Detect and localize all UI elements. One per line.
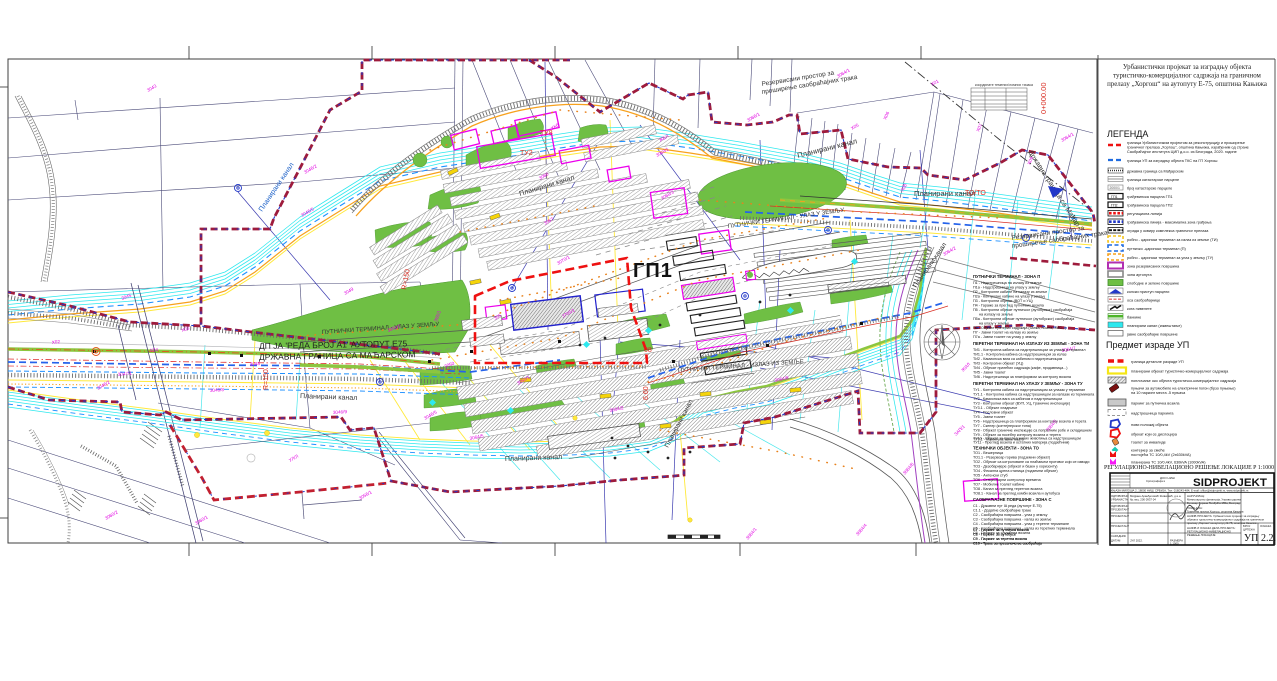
svg-text:број катастарске парцеле: број катастарске парцеле — [1127, 187, 1172, 191]
svg-text:ограда у оквиру комплекса гран: ограда у оквиру комплекса граничног прел… — [1127, 229, 1209, 233]
svg-text:Булевар Зорана Ђинђића 155а, Б: Булевар Зорана Ђинђића 155а, Београд — [1187, 501, 1240, 505]
svg-text:ТУ11 - Преглед возила и остатн: ТУ11 - Преглед возила и остатних материј… — [973, 441, 1069, 445]
svg-text:ТО3 - Дезобаријере (објекат и: ТО3 - Дезобаријере (објекат и базен у хо… — [973, 465, 1058, 469]
svg-text:С8 - Паркинг за аутобусе: С8 - Паркинг за аутобусе — [973, 533, 1016, 537]
svg-text:ТО1.1 - Резервоар горива (подз: ТО1.1 - Резервоар горива (подземни објек… — [973, 456, 1050, 460]
svg-text:ПЕРЕТНИ ТЕРМИНАЛ НА ИЗЛАЗУ ИЗ: ПЕРЕТНИ ТЕРМИНАЛ НА ИЗЛАЗУ ИЗ ЗЕМЉЕ - ЗО… — [973, 341, 1089, 346]
svg-text:грађевинска парцела ГП1: грађевинска парцела ГП1 — [1127, 195, 1173, 199]
svg-text:ТО8 - Канал за преглед теретни: ТО8 - Канал за преглед теретних возила — [973, 487, 1043, 491]
svg-text:П2 - Контролне кабине на излаз: П2 - Контролне кабине на излазу из земље — [973, 290, 1047, 294]
svg-text:граница катастарске парцеле: граница катастарске парцеле — [1127, 178, 1179, 182]
svg-text:РЕГУЛАЦИОНО-НИВЕЛАЦИОНО РЕШЕЊЕ: РЕГУЛАЦИОНО-НИВЕЛАЦИОНО РЕШЕЊЕ ЛОКАЦИЈЕ … — [1104, 464, 1275, 471]
svg-text:САОБРАЋАЈНЕ ПОВРШИНЕ - ЗОНА С: САОБРАЋАЈНЕ ПОВРШИНЕ - ЗОНА С — [973, 497, 1052, 502]
svg-text:нови положај објекта: нови положај објекта — [1131, 423, 1169, 427]
svg-text:С7 - Паркинг за путничка возил: С7 - Паркинг за путничка возила — [973, 528, 1030, 532]
svg-text:планирани канал (измештање): планирани канал (измештање) — [1127, 324, 1182, 328]
svg-text:Саобраћајног института ЦИП д.о: Саобраћајног института ЦИП д.о.о. из Бео… — [1127, 150, 1237, 154]
svg-text:Предмет израде УП: Предмет израде УП — [1106, 340, 1189, 350]
svg-text:ТО4 - Фекална црпна станица (п: ТО4 - Фекална црпна станица (подземни об… — [973, 469, 1058, 473]
svg-text:планирани објекат туристичко-к: планирани објекат туристичко-комерцијалн… — [1131, 370, 1229, 374]
svg-text:УРБАНИСТА: УРБАНИСТА — [1111, 498, 1128, 502]
svg-text:зона аутопута: зона аутопута — [1127, 273, 1152, 277]
svg-text:ОЗНАКА: ОЗНАКА — [1260, 524, 1271, 528]
svg-text:граница УП за изградњу објекта: граница УП за изградњу објекта ТКС на ГП… — [1127, 159, 1217, 163]
svg-text:зона резервисаних површина: зона резервисаних површина — [1127, 265, 1180, 269]
svg-text:ТУ2 - Камионска вага са кабино: ТУ2 - Камионска вага са кабином и надстр… — [973, 397, 1062, 401]
svg-text:слободне и зелене површине: слободне и зелене површине — [1127, 282, 1179, 286]
svg-text:колски приступ парцели: колски приступ парцели — [1127, 290, 1169, 294]
svg-text:С2 - Саобраћајна површина - ул: С2 - Саобраћајна површина - улаз у земљу — [973, 513, 1048, 517]
svg-text:ТО7 - Мобилне тоалет кабине: ТО7 - Мобилне тоалет кабине — [973, 483, 1024, 487]
svg-text:регулациона линија: регулациона линија — [1127, 212, 1163, 216]
svg-text:контејнер за смеће: контејнер за смеће — [1131, 449, 1165, 453]
svg-text:ПУТНИЧКИ ТЕРМИНАЛ - ЗОНА П: ПУТНИЧКИ ТЕРМИНАЛ - ЗОНА П — [973, 274, 1040, 279]
svg-text:ТУ7 - Скенер (контејнерског ти: ТУ7 - Скенер (контејнерског типа) — [973, 424, 1031, 428]
svg-text:ГП2: ГП2 — [1111, 204, 1118, 208]
svg-text:банкине: банкине — [1127, 316, 1141, 320]
svg-text:граница Урбанистичким пројекто: граница Урбанистичким пројектом за рекон… — [1127, 141, 1245, 145]
svg-text:на излазу из земље: на излазу из земље — [979, 313, 1013, 317]
svg-text:УП: УП — [1244, 533, 1258, 544]
svg-text:надстрешница паркинга: надстрешница паркинга — [1131, 412, 1174, 416]
svg-text:П5а - Контролни објекат путнич: П5а - Контролни објекат путничког (аутоб… — [973, 317, 1075, 321]
svg-text:ТУ1.1 - Контролна кабина са на: ТУ1.1 - Контролна кабина са надстрешницо… — [973, 393, 1095, 397]
svg-text:пуњачи за аутомобиле на електр: пуњачи за аутомобиле на електрични погон… — [1131, 387, 1236, 391]
svg-text:постојећа ТС 10/0,4kV (2x630kV: постојећа ТС 10/0,4kV (2x630kVA) — [1131, 453, 1192, 457]
svg-text:ЦРТЕЖА: ЦРТЕЖА — [1243, 528, 1255, 532]
svg-text:ТУ3.1 - Објекат хладњаче: ТУ3.1 - Објекат хладњаче — [973, 406, 1017, 410]
svg-text:ТИ1.1 - Контролна кабина са на: ТИ1.1 - Контролна кабина са надстрешницо… — [973, 353, 1067, 357]
svg-text:РЕШЕЊЕ ЛОКАЦИЈЕ: РЕШЕЊЕ ЛОКАЦИЈЕ — [1187, 533, 1216, 537]
svg-text:граница детаљне разраде УП: граница детаљне разраде УП — [1131, 360, 1184, 364]
svg-text:Урбанистички пројекат за изгра: Урбанистички пројекат за изградњу објект… — [1123, 64, 1251, 71]
svg-text:јавне саобраћајне површине: јавне саобраћајне површине — [1126, 333, 1178, 337]
svg-text:Гранични прелаз Хоргош, општин: Гранични прелаз Хоргош, општина Кањижа — [1187, 510, 1244, 514]
svg-text:поплочање око објекта туристич: поплочање око објекта туристичко-комерци… — [1131, 379, 1237, 383]
svg-text:3046/8: 3046/8 — [210, 387, 225, 393]
svg-text:ТО8.1 - Канал за преглед комби: ТО8.1 - Канал за преглед комби возила и … — [973, 492, 1061, 496]
svg-text:ТУ1 - Контролна кабина са надс: ТУ1 - Контролна кабина са надстрешницом … — [973, 388, 1085, 392]
svg-text:ТЕХНИЧКИ ОБЈЕКТИ - ЗОНА ТО: ТЕХНИЧКИ ОБЈЕКТИ - ЗОНА ТО — [973, 446, 1040, 451]
svg-text:П2а - Контролне кабине на улаз: П2а - Контролне кабине на улазу у земљу — [973, 295, 1045, 299]
svg-text:П1а - Надстрешница на улазу у: П1а - Надстрешница на улазу у земљу — [973, 286, 1040, 290]
svg-text:ДОО НИШ: ДОО НИШ — [1160, 476, 1175, 480]
svg-text:ТИ5 - Јавни тоалет: ТИ5 - Јавни тоалет — [973, 371, 1006, 375]
svg-text:R=150: R=150 — [263, 369, 270, 390]
svg-text:С4 - Саобраћајна површина - ул: С4 - Саобраћајна површина - улаз у терет… — [973, 522, 1069, 526]
svg-text:3046/9: 3046/9 — [333, 409, 348, 415]
svg-text:ТИ1 - Контролна кабина са надс: ТИ1 - Контролна кабина са надстрешницом … — [973, 348, 1086, 352]
svg-text:робно - царински терминал за у: робно - царински терминал за улаз у земљ… — [1127, 256, 1214, 260]
svg-text:2.2.: 2.2. — [1261, 533, 1276, 544]
svg-text:САРАДНИК: САРАДНИК — [1111, 534, 1126, 538]
svg-text:ПРОЈЕКТАНТ: ПРОЈЕКТАНТ — [1111, 514, 1129, 518]
svg-text:П7 - Јавни тоалет на излазу из: П7 - Јавни тоалет на излазу из земље — [973, 331, 1038, 335]
svg-text:кота нивелете: кота нивелете — [1127, 307, 1152, 311]
svg-text:2000/1: 2000/1 — [1110, 186, 1120, 190]
svg-text:С10 - Траке за пресвлачење сао: С10 - Траке за пресвлачење саобраћаја — [973, 542, 1043, 546]
svg-text:граничног прелаза „Хоргош“, оп: граничног прелаза „Хоргош“, општина Кањи… — [1127, 146, 1249, 150]
svg-text:Х04: Х04 — [150, 347, 159, 353]
svg-text:6.60: 6.60 — [643, 386, 650, 400]
svg-text:П4 - Гараже за преглед путничк: П4 - Гараже за преглед путничких возила — [973, 304, 1045, 308]
svg-text:КЊАЗА МИЛОША 2, 18000 НИШ, СРБ: КЊАЗА МИЛОША 2, 18000 НИШ, СРБИЈА, Тел: … — [1111, 489, 1249, 493]
svg-text:ТО2 - Објекат са котроловане с: ТО2 - Објекат са котроловане са плаћањем… — [973, 460, 1089, 464]
svg-text:ПРОЈЕКТАНТ: ПРОЈЕКТАНТ — [1111, 508, 1129, 512]
svg-text:државна граница са Мађарском: државна граница са Мађарском — [1127, 170, 1184, 174]
svg-text:ГП1: ГП1 — [633, 260, 673, 282]
svg-text:објекат који се дислоцира: објекат који се дислоцира — [1131, 433, 1178, 437]
svg-text:ТИ3 - Контролни објекат (УЦ): ТИ3 - Контролни објекат (УЦ) — [973, 362, 1023, 366]
svg-text:ГП1: ГП1 — [1111, 195, 1118, 199]
svg-text:на 10 паркинг места -5 пуњача: на 10 паркинг места -5 пуњача — [1131, 391, 1186, 395]
svg-text:координате темених/ломних тача: координате темених/ломних тачака — [975, 83, 1033, 87]
svg-text:робно - царински терминал за и: робно - царински терминал за излаз из зе… — [1127, 238, 1219, 242]
svg-text:08: 08 — [644, 347, 652, 354]
svg-text:П7а - Јавни тоалет на улазу у: П7а - Јавни тоалет на улазу у земљу — [973, 335, 1037, 339]
svg-text:паркинг за путничка возила: паркинг за путничка возила — [1131, 402, 1180, 406]
svg-text:ТИ2 - Камионска вага са кабино: ТИ2 - Камионска вага са кабином и надстр… — [973, 357, 1063, 361]
svg-text:1:1000: 1:1000 — [1170, 542, 1179, 546]
svg-text:П5 - Контролни објекат путничк: П5 - Контролни објекат путничког (аутобу… — [973, 308, 1073, 312]
svg-text:ТУ4 - Пословни објекат: ТУ4 - Пословни објекат — [973, 411, 1013, 415]
svg-text:ТУ5 - Јавни тоалет: ТУ5 - Јавни тоалет — [973, 415, 1006, 419]
svg-text:ДАТУМ: ДАТУМ — [1111, 539, 1121, 543]
svg-text:туристичко-комерцијалног садрж: туристичко-комерцијалног садржаја на гра… — [1113, 73, 1261, 80]
svg-text:SIDPROJEKT: SIDPROJEKT — [1193, 477, 1267, 489]
svg-text:оса саобраћајнице: оса саобраћајнице — [1127, 299, 1160, 303]
svg-text:ТУ6 - Надстрешница са платформ: ТУ6 - Надстрешница са платформом за конт… — [973, 420, 1087, 424]
svg-text:ТУ2: ТУ2 — [520, 150, 533, 157]
svg-text:ТУ8 - Објекат граничне инспекц: ТУ8 - Објекат граничне инспекције са поп… — [973, 429, 1092, 433]
svg-text:ТО6 - Стационарни контролор вр: ТО6 - Стационарни контролор времена — [973, 478, 1042, 482]
svg-text:П3 - Контролни објекат (ВОТ и: П3 - Контролни објекат (ВОТ и УЦ) — [973, 299, 1033, 303]
svg-text:ЛЕГЕНДА: ЛЕГЕНДА — [1107, 129, 1148, 139]
svg-text:грађевинска линија - максималн: грађевинска линија - максимална зона гра… — [1127, 221, 1212, 225]
svg-text:прелазу „Хоргош“ на аутопуту Е: прелазу „Хоргош“ на аутопуту Е-75, општи… — [1107, 81, 1267, 88]
svg-text:ПЕРЕТНИ ТЕРМИНАЛ НА УЛАЗУ У ЗЕ: ПЕРЕТНИ ТЕРМИНАЛ НА УЛАЗУ У ЗЕМЉУ - ЗОНА… — [973, 381, 1083, 386]
svg-text:путничко -царински терминал (П: путничко -царински терминал (П) — [1127, 247, 1186, 251]
svg-text:ТУ8: ТУ8 — [540, 130, 553, 137]
svg-text:0+000.00: 0+000.00 — [1039, 83, 1048, 115]
svg-text:П1 - Надстрешница на излазу из: П1 - Надстрешница на излазу из земље — [973, 281, 1042, 285]
svg-text:грађевинска парцела ГП2: грађевинска парцела ГП2 — [1127, 204, 1173, 208]
svg-text:Х02: Х02 — [52, 339, 61, 345]
svg-text:П6 - Објекат пратећих садржаја: П6 - Објекат пратећих садржаја (банка, п… — [973, 326, 1066, 330]
svg-text:ПРОЈЕКТАНТ: ПРОЈЕКТАНТ — [1111, 524, 1129, 528]
svg-text:С9 - Паркинг за теретна возила: С9 - Паркинг за теретна возила — [973, 537, 1028, 541]
svg-text:С1 - Државни пут IA реда (ауто: С1 - Државни пут IA реда (аутопут Е-75) — [973, 504, 1042, 508]
svg-text:тоалет за инвалиде: тоалет за инвалиде — [1131, 441, 1166, 445]
svg-text:на улазу у земљу: на улазу у земљу — [979, 322, 1009, 326]
svg-text:ТО/ТО: ТО/ТО — [965, 190, 986, 197]
svg-text:С3 - Саобраћајна површина - из: С3 - Саобраћајна површина - излаз из зем… — [973, 518, 1051, 522]
svg-text:ТУ3 - Контролни објекат (ВУП,: ТУ3 - Контролни објекат (ВУП, УЦ, Гранич… — [973, 402, 1070, 406]
svg-text:ТИ4 - Објекат пратећих садржај: ТИ4 - Објекат пратећих садржаја (кафе, п… — [973, 366, 1068, 370]
svg-text:ТИ6 - Надстрешница за платформ: ТИ6 - Надстрешница за платформом за конт… — [973, 375, 1072, 379]
svg-text:ЈУЛ 2022.: ЈУЛ 2022. — [1130, 539, 1143, 543]
svg-text:С1.1 - Додатне саобраћајне тра: С1.1 - Додатне саобраћајне траке — [973, 509, 1031, 513]
svg-text:бр.лиц. 200 0937 04: бр.лиц. 200 0937 04 — [1130, 498, 1156, 502]
svg-text:ТО5 - Антенски стуб: ТО5 - Антенски стуб — [973, 474, 1008, 478]
svg-text:ТО1 - Вешерница: ТО1 - Вешерница — [973, 451, 1004, 455]
